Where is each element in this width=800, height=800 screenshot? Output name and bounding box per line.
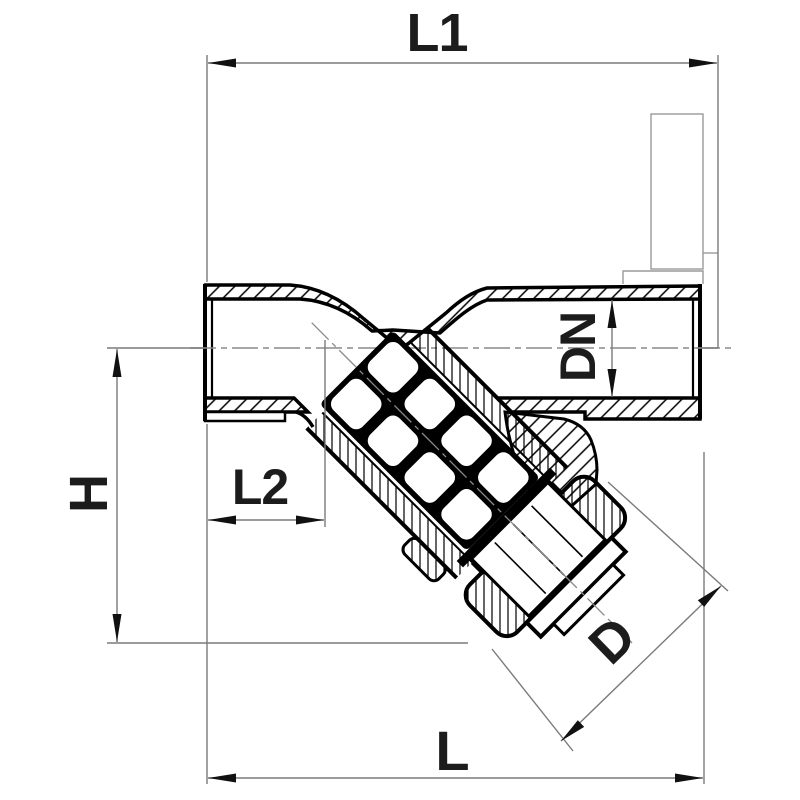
dim-label-h: H	[59, 475, 119, 513]
pipe-bottom-wall-left	[205, 398, 308, 412]
dim-label-l1: L1	[406, 3, 467, 63]
drawing-canvas: L1 DN H L2 D L	[0, 0, 800, 800]
y-strainer-technical-drawing: L1 DN H L2 D L	[0, 0, 800, 800]
dim-label-dn: DN	[550, 312, 606, 382]
pipe-left-socket	[205, 412, 285, 421]
dim-label-l: L	[435, 719, 468, 782]
dim-label-l2: L2	[232, 459, 288, 515]
